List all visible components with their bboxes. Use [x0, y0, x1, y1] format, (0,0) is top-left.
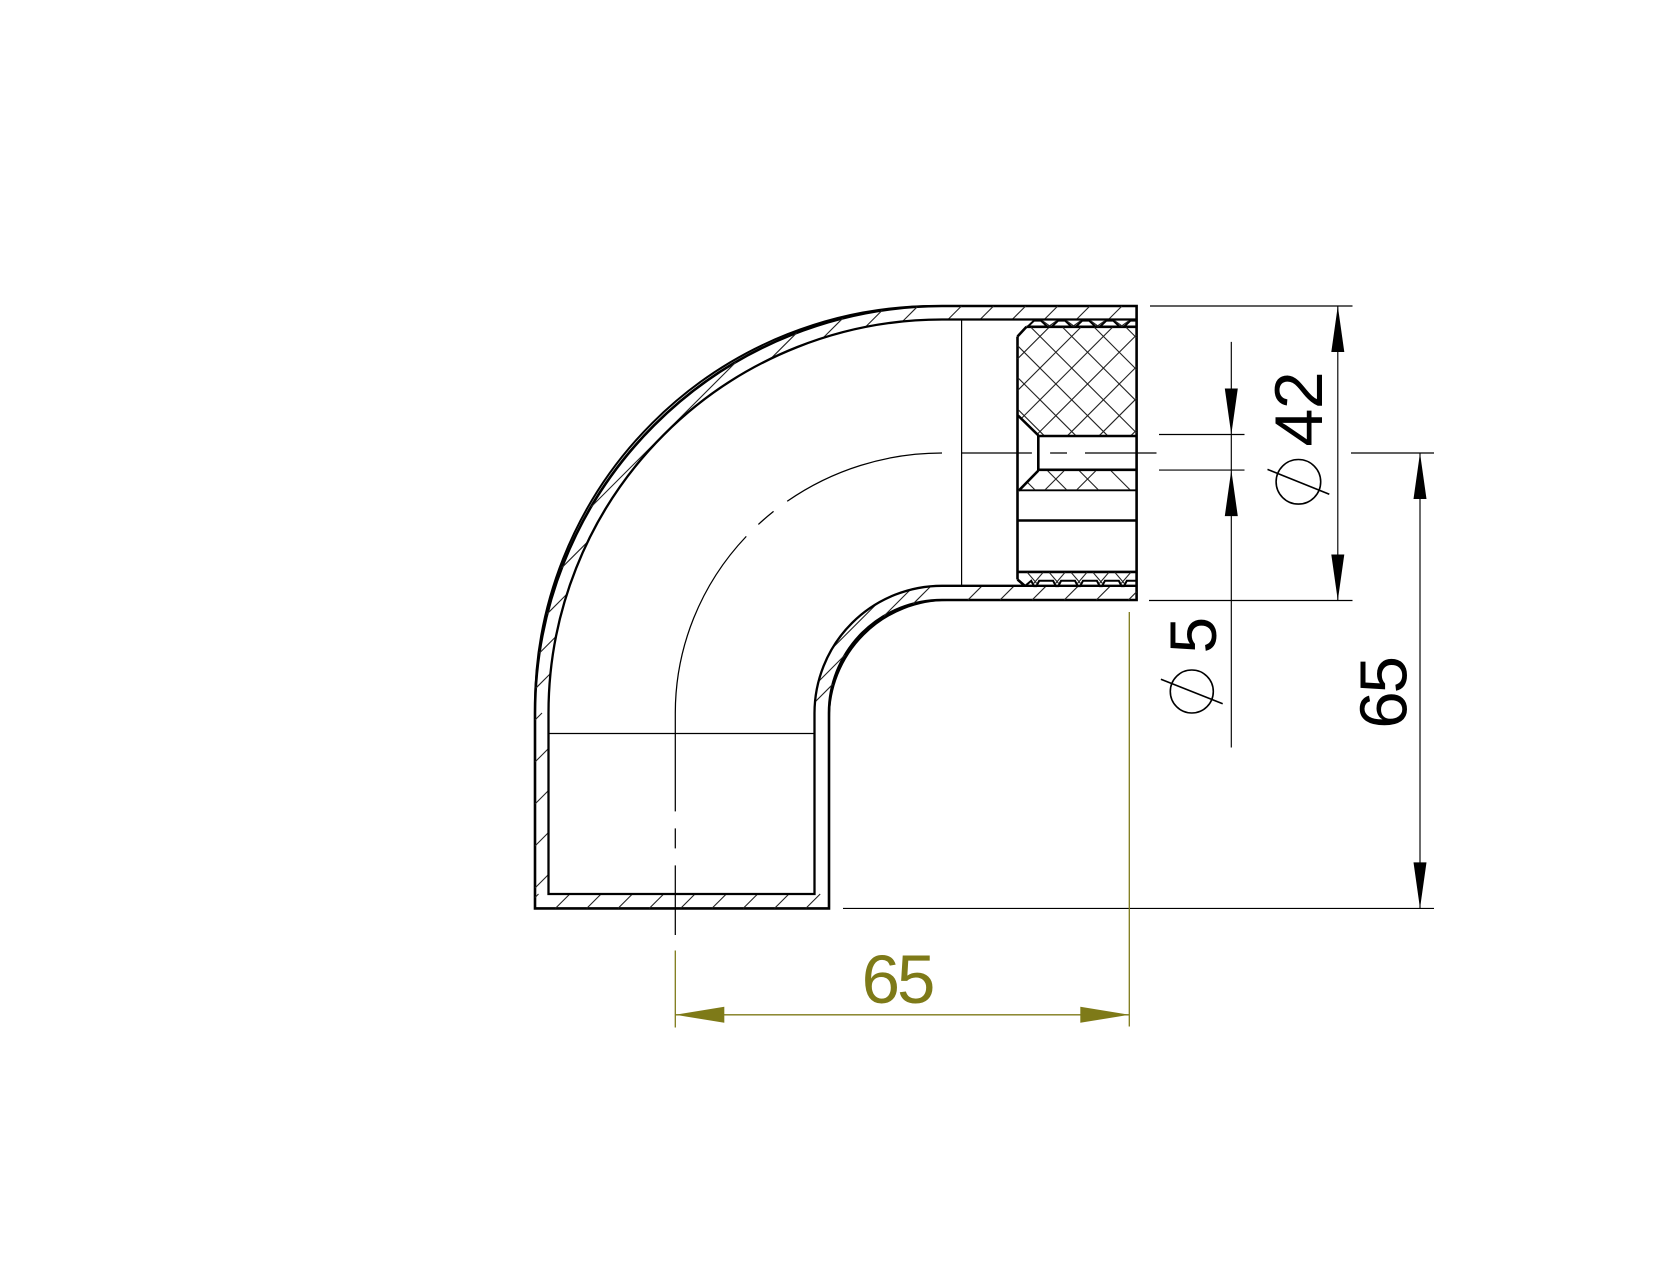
svg-text:42: 42 — [1261, 372, 1337, 447]
svg-text:65: 65 — [862, 941, 933, 1018]
svg-text:5: 5 — [1156, 618, 1230, 654]
svg-text:65: 65 — [1347, 658, 1422, 729]
